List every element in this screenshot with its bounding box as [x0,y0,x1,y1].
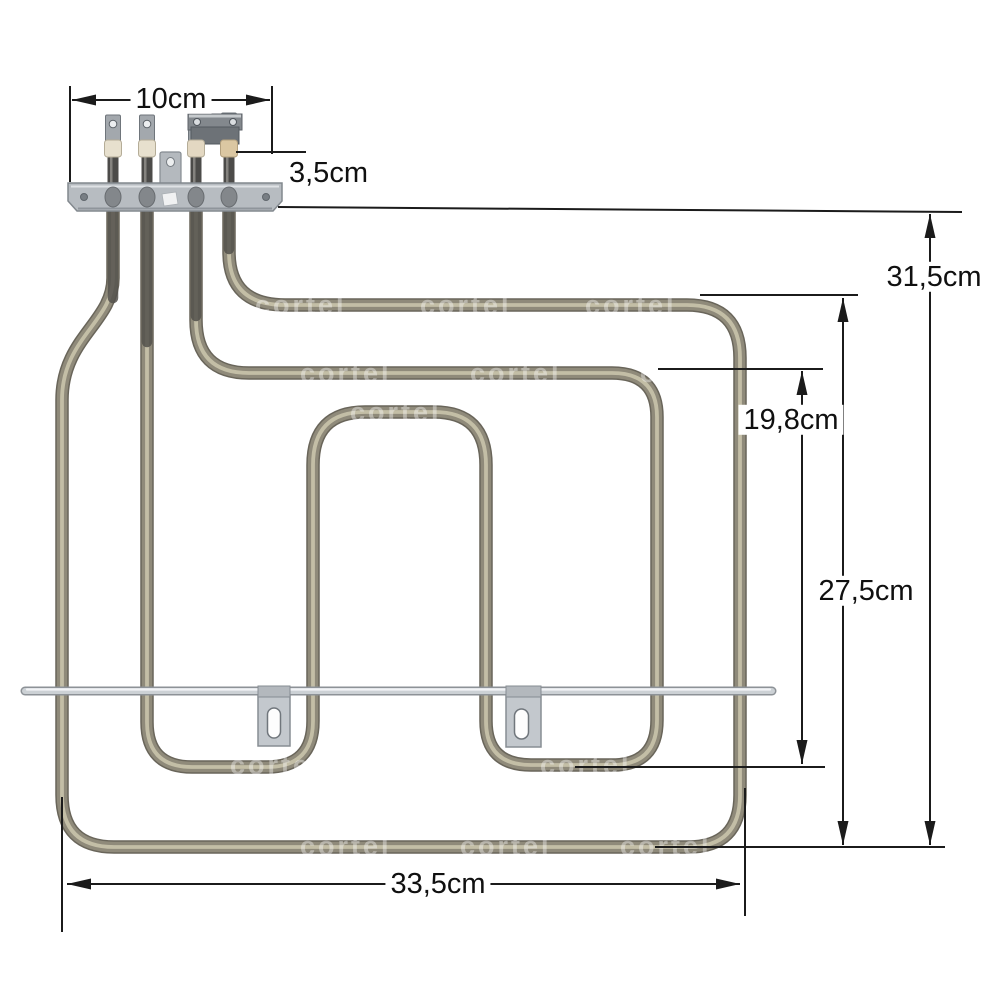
heating-element-artwork: cortel cortel cortel cortel cortel corte… [0,0,1000,1000]
reference-line-bracket [278,207,962,212]
svg-text:cortel: cortel [300,358,392,388]
bracket-rivet-left [81,194,88,201]
svg-text:cortel: cortel [540,750,632,780]
dimension-label-inner-loop-height: 19,8cm [738,405,843,435]
mounting-tab-right [506,692,541,747]
product-dimension-diagram: cortel cortel cortel cortel cortel corte… [0,0,1000,1000]
svg-text:cortel: cortel [255,290,347,320]
cold-pin-sections [113,192,229,342]
svg-text:cortel: cortel [640,358,732,388]
svg-text:cortel: cortel [460,831,552,861]
dimension-label-total-width: 33,5cm [385,869,490,899]
mounting-tab-left [258,692,290,746]
svg-text:cortel: cortel [470,358,562,388]
mounting-bracket [68,152,282,211]
inner-loop-tube [147,192,657,767]
support-rod [25,690,772,692]
bracket-weld-chip [162,192,178,206]
svg-text:cortel: cortel [350,397,442,427]
svg-text:cortel: cortel [420,290,512,320]
dimension-label-terminal-width: 10cm [131,84,212,114]
svg-text:cortel: cortel [585,290,677,320]
dimension-label-total-height: 31,5cm [881,262,986,292]
dimension-label-outer-loop-height: 27,5cm [813,576,918,606]
bracket-rivet-right [263,194,270,201]
svg-text:cortel: cortel [300,831,392,861]
dimension-label-bracket-offset: 3,5cm [284,158,373,188]
svg-text:cortel: cortel [230,750,322,780]
bracket-center-tab [160,152,181,185]
